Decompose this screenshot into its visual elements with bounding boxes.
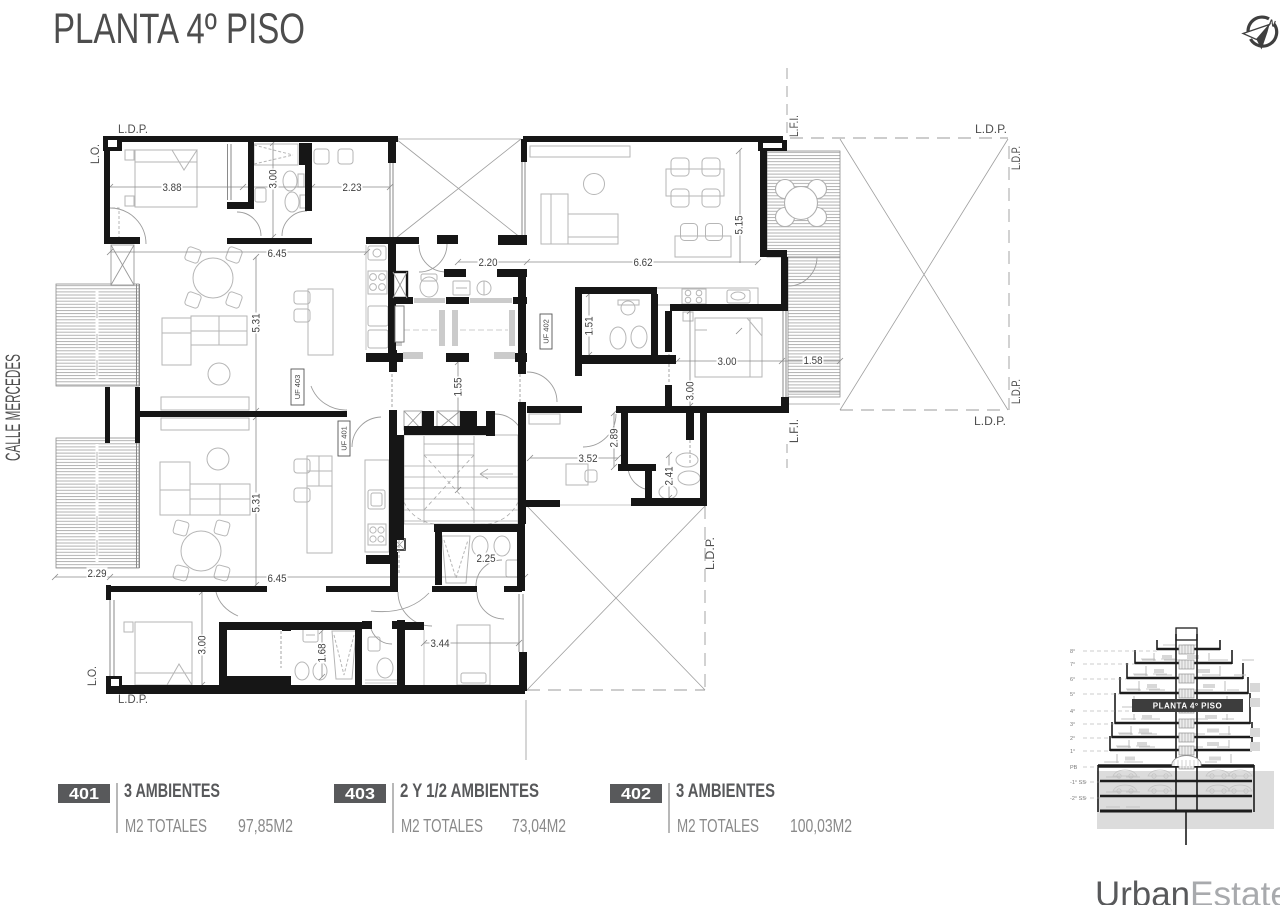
svg-text:3.00: 3.00 — [268, 170, 280, 189]
svg-text:2.25: 2.25 — [477, 553, 496, 565]
svg-text:5.15: 5.15 — [734, 216, 746, 235]
svg-text:L.D.P.: L.D.P. — [118, 122, 148, 136]
svg-text:L.D.P.: L.D.P. — [974, 414, 1006, 428]
svg-text:6.45: 6.45 — [268, 248, 287, 260]
svg-text:401: 401 — [69, 786, 99, 803]
svg-text:-2° SS: -2° SS — [1070, 796, 1086, 802]
svg-text:L.D.P.: L.D.P. — [703, 537, 717, 570]
svg-text:5.31: 5.31 — [251, 314, 263, 333]
svg-text:7°: 7° — [1070, 662, 1075, 668]
svg-text:2.23: 2.23 — [343, 182, 362, 194]
svg-text:4°: 4° — [1070, 709, 1075, 715]
svg-text:1.55: 1.55 — [453, 378, 465, 397]
svg-text:2.89: 2.89 — [609, 429, 621, 448]
svg-text:2.20: 2.20 — [479, 257, 498, 269]
svg-text:2°: 2° — [1070, 736, 1075, 742]
svg-text:1.68: 1.68 — [317, 644, 329, 663]
svg-text:100,03M2: 100,03M2 — [790, 815, 852, 836]
svg-text:3.88: 3.88 — [163, 182, 182, 194]
svg-text:M2 TOTALES: M2 TOTALES — [125, 815, 207, 836]
svg-text:73,04M2: 73,04M2 — [512, 815, 566, 836]
svg-text:2.41: 2.41 — [664, 467, 676, 486]
svg-text:6.45: 6.45 — [268, 573, 287, 585]
svg-text:1.51: 1.51 — [584, 317, 596, 336]
svg-text:3.00: 3.00 — [685, 382, 697, 401]
svg-text:6°: 6° — [1070, 677, 1075, 683]
svg-text:L.F.I.: L.F.I. — [787, 115, 801, 137]
svg-text:M2 TOTALES: M2 TOTALES — [401, 815, 483, 836]
svg-text:403: 403 — [345, 786, 375, 803]
svg-text:UF 401: UF 401 — [340, 426, 349, 451]
svg-text:3.52: 3.52 — [579, 453, 598, 465]
svg-text:97,85M2: 97,85M2 — [238, 815, 293, 836]
svg-text:2 Y 1/2 AMBIENTES: 2 Y 1/2 AMBIENTES — [400, 781, 539, 802]
svg-text:PLANTA 4º PISO: PLANTA 4º PISO — [53, 5, 305, 53]
svg-text:3 AMBIENTES: 3 AMBIENTES — [676, 781, 775, 802]
svg-text:UF 402: UF 402 — [542, 319, 551, 344]
svg-text:2.29: 2.29 — [88, 568, 107, 580]
svg-text:L.D.P.: L.D.P. — [1009, 146, 1023, 170]
svg-text:8°: 8° — [1070, 649, 1075, 655]
svg-text:UrbanEstate: UrbanEstate — [1095, 875, 1280, 905]
svg-text:M2 TOTALES: M2 TOTALES — [677, 815, 759, 836]
svg-text:1°: 1° — [1070, 749, 1075, 755]
svg-text:L.O.: L.O. — [85, 666, 99, 686]
svg-text:402: 402 — [621, 786, 651, 803]
svg-text:3.00: 3.00 — [197, 636, 209, 655]
svg-text:6.62: 6.62 — [634, 257, 653, 269]
svg-text:5.31: 5.31 — [251, 494, 263, 513]
svg-text:L.O.: L.O. — [88, 144, 102, 164]
svg-text:PLANTA 4º PISO: PLANTA 4º PISO — [1153, 702, 1222, 711]
svg-text:L.F.I.: L.F.I. — [787, 419, 801, 443]
svg-text:UF 403: UF 403 — [293, 375, 302, 400]
svg-text:-1° SS: -1° SS — [1070, 780, 1086, 786]
svg-text:L.D.P.: L.D.P. — [975, 122, 1007, 136]
svg-text:L.D.P.: L.D.P. — [1009, 379, 1023, 404]
svg-text:3.00: 3.00 — [718, 356, 737, 368]
svg-text:PB: PB — [1070, 765, 1078, 771]
svg-text:5°: 5° — [1070, 692, 1075, 698]
svg-text:3.44: 3.44 — [431, 638, 450, 650]
svg-text:CALLE MERCEDES: CALLE MERCEDES — [2, 354, 25, 461]
svg-text:3 AMBIENTES: 3 AMBIENTES — [124, 781, 220, 802]
svg-text:L.D.P.: L.D.P. — [118, 692, 148, 706]
svg-text:3°: 3° — [1070, 722, 1075, 728]
svg-text:1.58: 1.58 — [804, 355, 823, 367]
